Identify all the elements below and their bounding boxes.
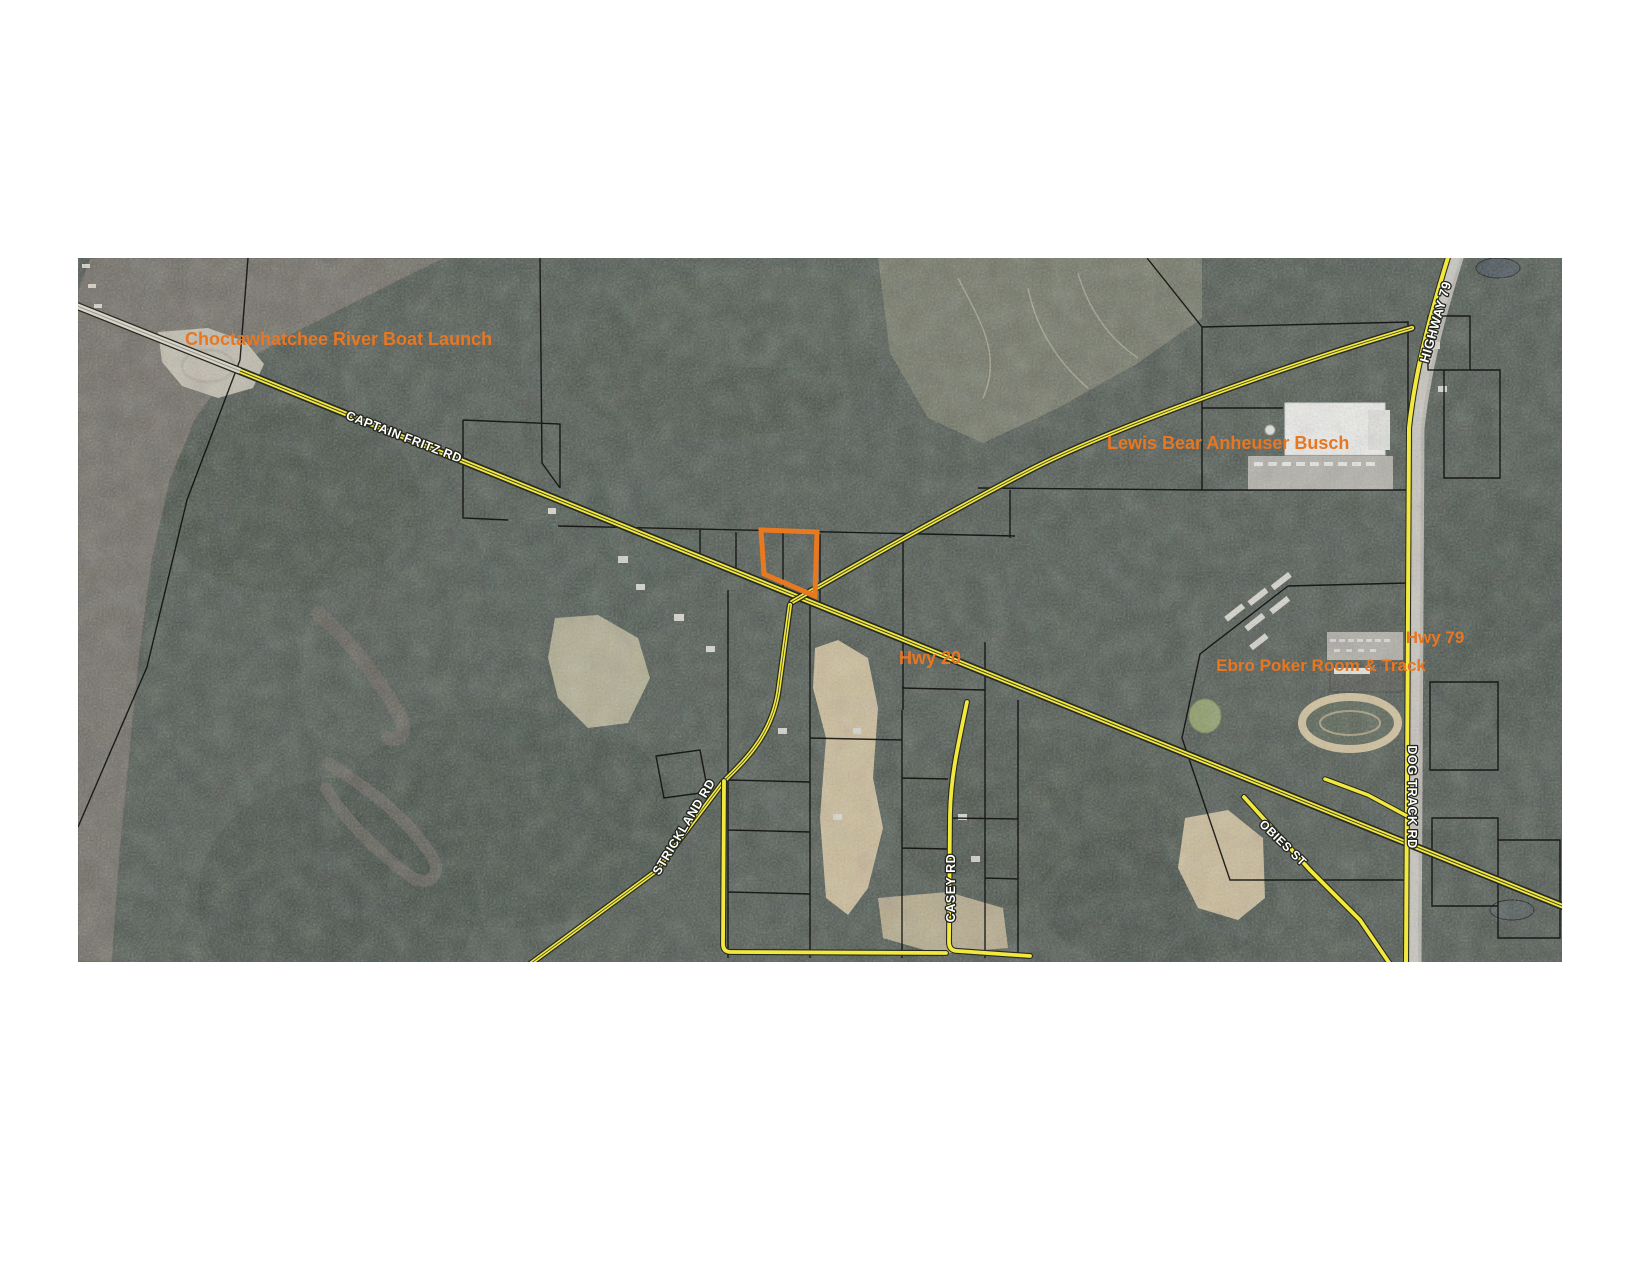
road-label-casey-rd: CASEY RD: [944, 854, 958, 922]
road-label-dog-track-rd: DOG TRACK RD: [1405, 745, 1419, 848]
poi-label-ebro-poker-room-and-track: Ebro Poker Room & Track: [1216, 656, 1426, 675]
poi-label-hwy-20: Hwy 20: [899, 648, 961, 668]
poi-label-hwy-79: Hwy 79: [1406, 628, 1465, 647]
poi-label-choctawhatchee-river-boat-launch: Choctawhatchee River Boat Launch: [185, 329, 492, 349]
page-background: CAPTAIN FRITZ RD HIGHWAY 79 STRICKLAND R…: [0, 0, 1650, 1275]
poi-label-lewis-bear-anheuser-busch: Lewis Bear Anheuser Busch: [1107, 433, 1349, 453]
aerial-parcel-map: CAPTAIN FRITZ RD HIGHWAY 79 STRICKLAND R…: [78, 258, 1562, 962]
